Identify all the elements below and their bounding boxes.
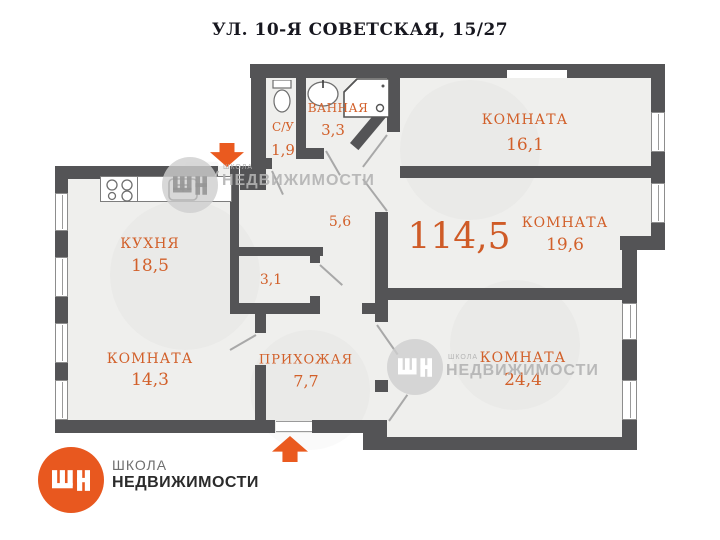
room-area: 18,5 [131,256,169,276]
window [651,183,665,223]
watermark-school: ШКОЛА [448,354,478,361]
room-area: 1,9 [271,141,295,159]
room-label: ПРИХОЖАЯ [259,353,353,368]
watermark-circle [162,157,218,213]
wall-hall-room4-stub-bottom [255,365,266,423]
wall-room1-room2-divider [400,166,651,178]
entrance-door-sill [276,421,312,432]
watermark-circle [387,339,443,395]
wall-hall-room4-stub-top [255,313,266,333]
wall-connector-block [363,420,387,450]
logo-text-line1: ШКОЛА [112,457,167,473]
wall-corridor-right [375,212,388,322]
watermark-name: НЕДВИЖИМОСТИ [222,172,375,190]
wall-bottom-right [363,437,637,450]
shn-logo-icon [398,358,432,377]
page-title: УЛ. 10-Я СОВЕТСКАЯ, 15/27 [0,20,720,40]
room-label: КОМНАТА [482,112,568,128]
total-area: 114,5 [407,217,510,258]
window [622,303,637,340]
company-logo [38,447,104,513]
room-area: 3,3 [321,121,345,139]
wall-closet-right-stub-top [310,247,320,263]
window [55,193,68,231]
wall-hall-top-stub [362,303,375,314]
logo-text-line2: НЕДВИЖИМОСТИ [112,474,259,492]
window [55,323,68,363]
wall-vestibule-block [375,380,388,392]
room-label: С/У [272,120,294,134]
wall-niche [507,70,567,78]
room-area: 5,6 [329,214,351,230]
toilet-icon [271,80,293,116]
room-label: КОМНАТА [107,351,193,367]
window [55,257,68,297]
wall-room2-room3-divider [387,288,622,300]
room-area: 19,6 [546,235,584,255]
window [55,380,68,420]
window [651,112,665,152]
wall-bath-bottom-stub [296,148,324,159]
window [622,380,637,420]
wall-closet-bottom [230,303,320,314]
shn-logo-icon [52,470,90,491]
wall-wc-bottom-stub [251,158,272,169]
room-label: КУХНЯ [120,236,179,252]
watermark-school: ШКОЛА [223,164,253,171]
wall-bottom-left [55,420,275,433]
room-area: 3,1 [260,272,282,288]
shn-logo-icon [173,176,207,195]
room-area: 14,3 [131,370,169,390]
wall-wc-bath-divider [296,64,306,158]
room-label: КОМНАТА [522,215,608,231]
room-area: 7,7 [293,372,318,391]
watermark-name: НЕДВИЖИМОСТИ [446,362,599,380]
room-label: ВАННАЯ [308,101,369,115]
floor-plan-page: { "title": "УЛ. 10-Я СОВЕТСКАЯ, 15/27", … [0,0,720,540]
stove-icon [100,176,138,202]
room-area: 16,1 [506,135,544,155]
wall-top [250,64,665,78]
